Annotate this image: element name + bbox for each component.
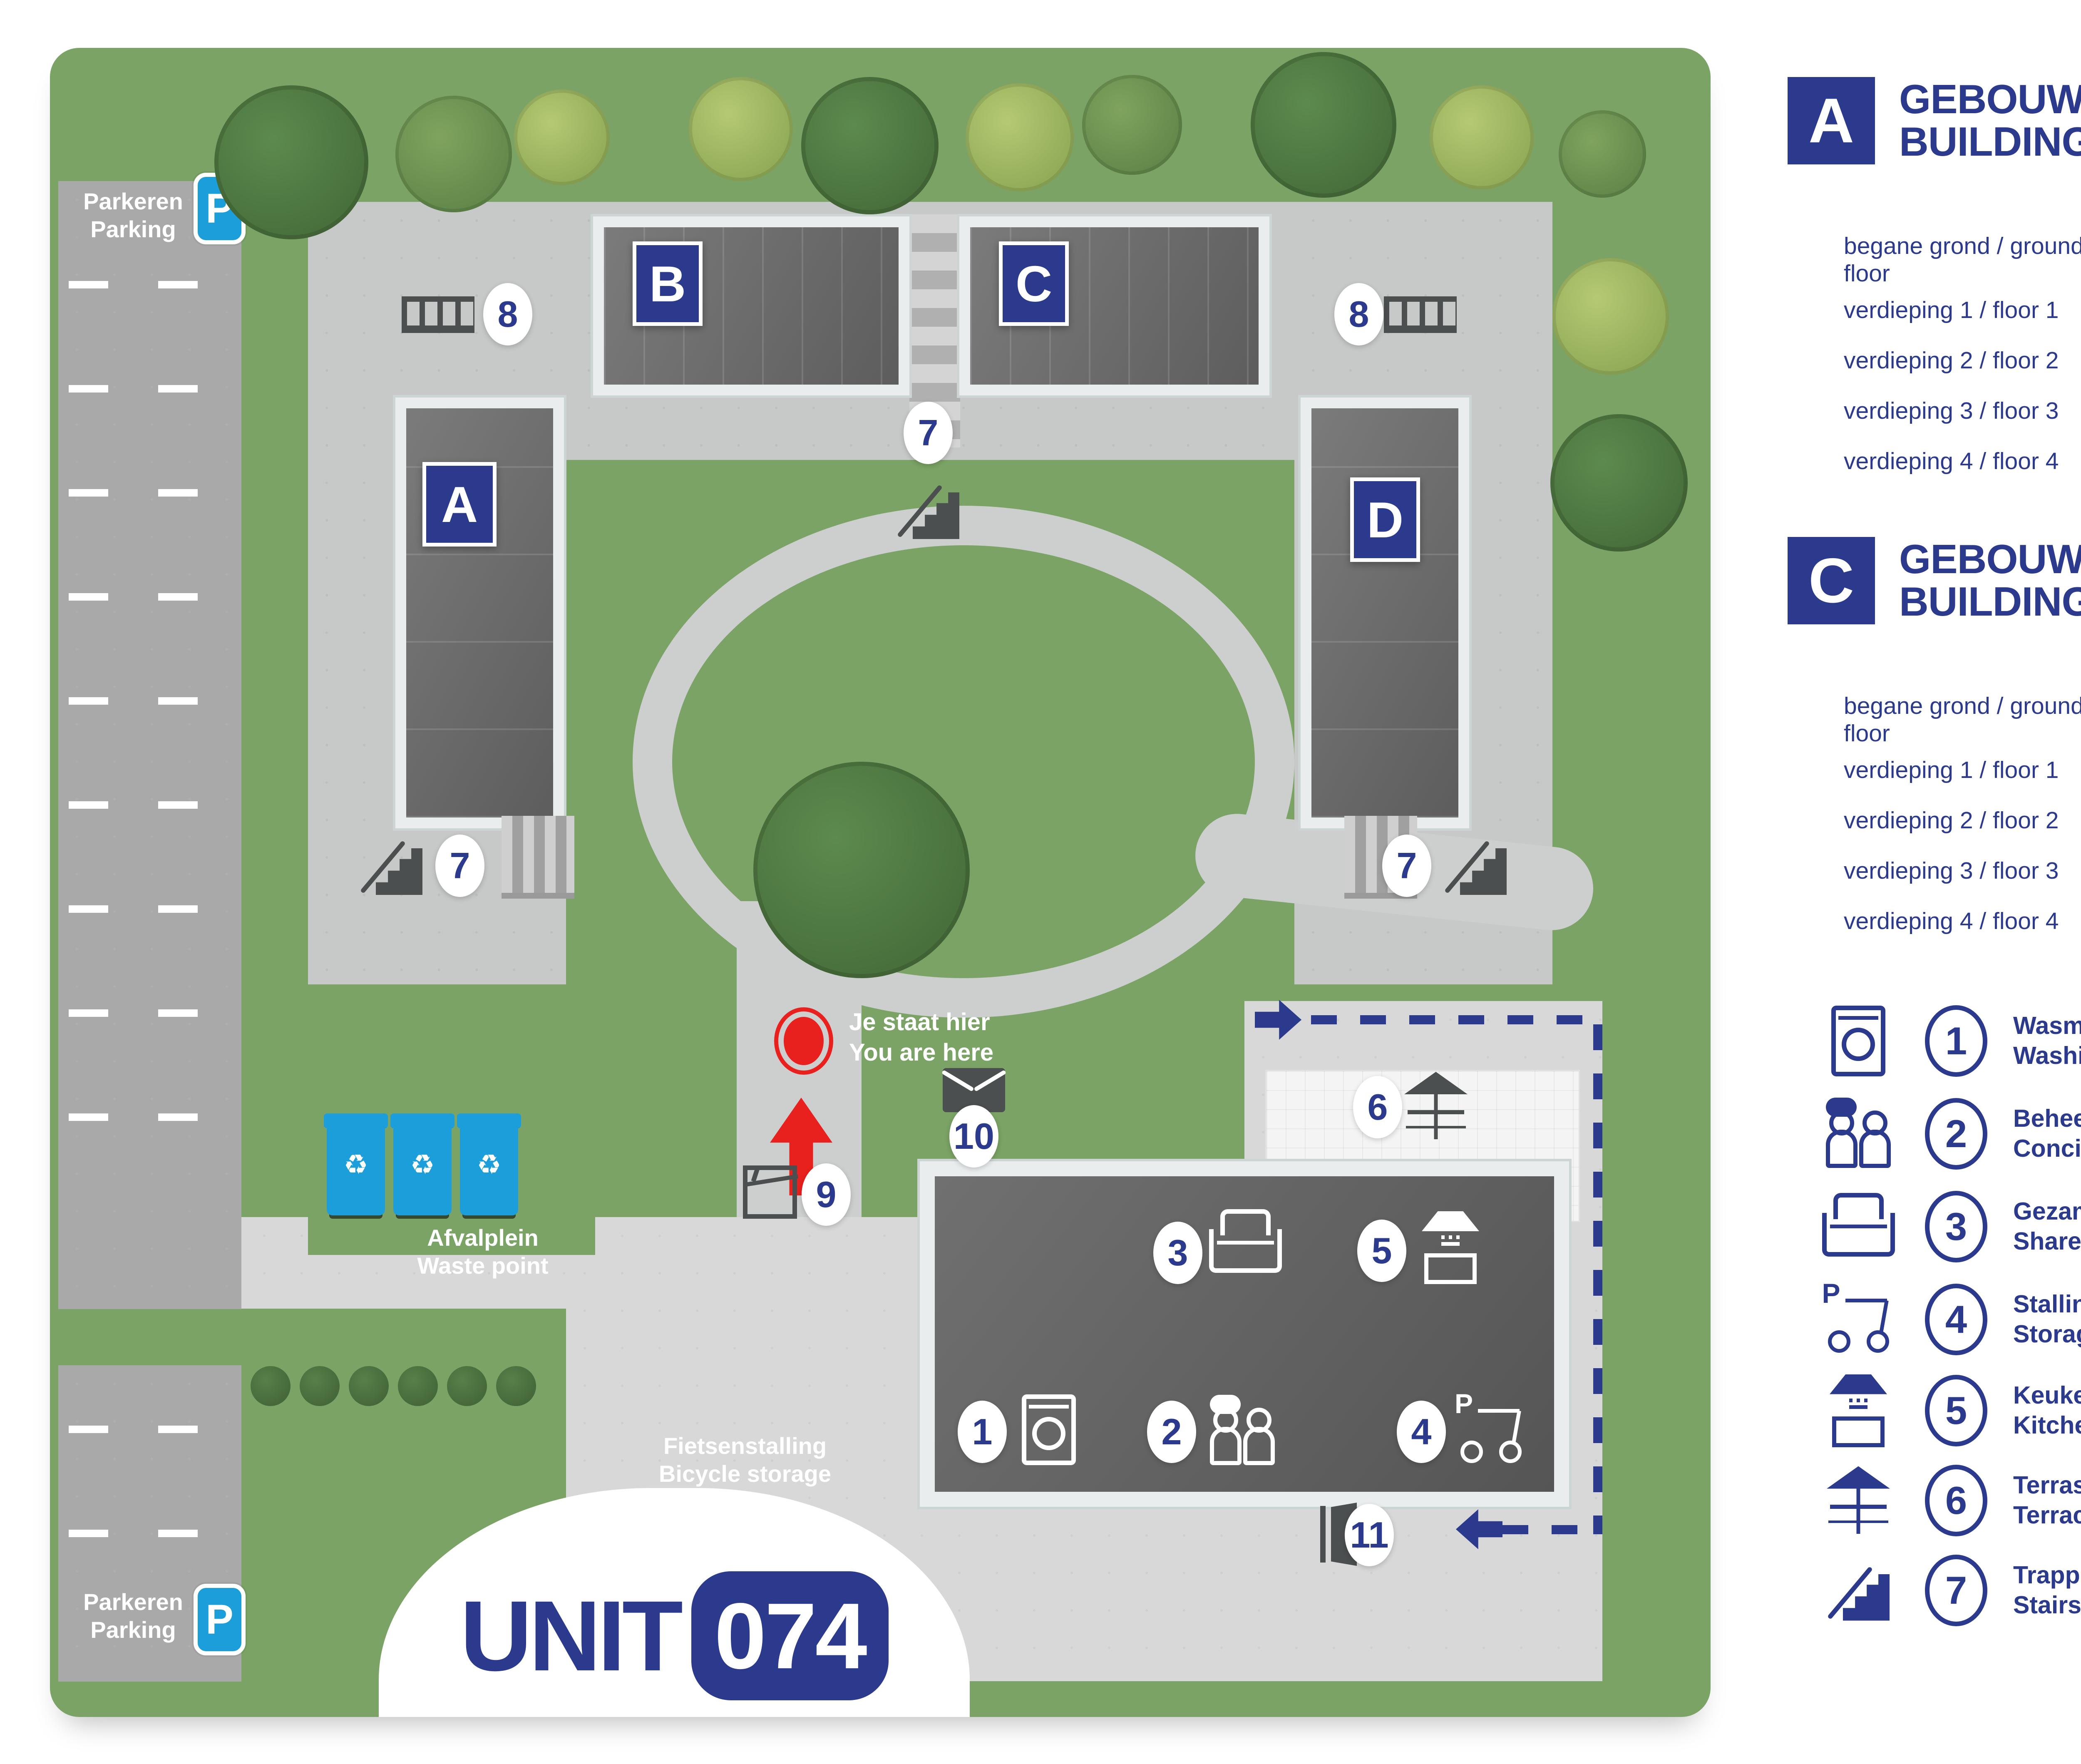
legend-text-en: Kitchen [2013,1411,2081,1441]
floor-row: verdieping 4 / floor 4174 - 196 [1788,436,2081,486]
waste-point-label: Afvalplein Waste point [408,1224,558,1280]
recycle-glyph: ♻ [477,1148,501,1180]
floor-row: verdieping 2 / floor 2286 - 300 [1788,795,2081,845]
site-map: Parkeren Parking P Parkeren Parking P A … [50,48,1711,1717]
title-nl: GEBOUW [1899,78,2081,121]
sofa-icon [1209,1229,1282,1273]
tree-icon [1251,52,1396,198]
map-badge-8: 8 [483,283,532,345]
parking-line [69,489,231,497]
concierge-icon [1825,1099,1892,1168]
floor-label: begane grond / ground floor [1788,232,2081,287]
recycle-bin-icon: ♻ [460,1113,518,1215]
tree-icon [1559,110,1646,198]
parking-label-north: Parkeren Parking [75,187,191,243]
building-B-label: B [633,241,703,326]
building-title: GEBOUW BUILDING [1899,538,2081,623]
bicycle-storage-line2: Bicycle storage [653,1460,837,1488]
washing-machine-icon [1831,1006,1885,1076]
map-badge-2: 2 [1147,1401,1196,1463]
you-are-here-line1: Je staat hier [849,1007,1065,1038]
legend-text-nl: Keuken [2013,1381,2081,1411]
parking-line [69,905,231,913]
legend-column-1: 1 Wasmachines en wasdrogersWashing machi… [1815,994,2081,1635]
floor-row: begane grond / ground floor198 - 220 [1788,234,2081,285]
tree-icon [514,89,610,185]
parking-line [69,593,231,601]
floor-label: verdieping 3 / floor 3 [1788,397,2081,425]
bush-icon [447,1366,487,1406]
stairs-icon [1827,1560,1890,1621]
stairs-icon [1444,835,1507,895]
tree-icon [1552,258,1669,375]
tree-icon [395,96,512,212]
legend-item-6: 6 TerrasTerrace [1815,1456,2081,1545]
map-badge-9: 9 [802,1163,851,1226]
floor-label: begane grond / ground floor [1788,692,2081,747]
legend-text-nl: Gezamenlijke woonkamer [2013,1197,2081,1227]
parking-label-line1: Parkeren [75,187,191,215]
floor-label: verdieping 1 / floor 1 [1788,756,2081,784]
tree-icon [1430,85,1534,189]
tree-icon [214,85,368,239]
legend-number-badge: 4 [1925,1284,1987,1355]
legend-number-badge: 2 [1925,1098,1987,1170]
building-D [1301,398,1469,828]
parking-sign-letter: P [206,1596,233,1644]
floor-row: verdieping 4 / floor 4350 - 364 [1788,896,2081,946]
map-badge-6: 6 [1353,1076,1402,1138]
parking-label-south: Parkeren Parking [75,1588,191,1644]
legend-number-badge: 7 [1925,1555,1987,1626]
bush-icon [349,1366,389,1406]
parking-line [69,801,231,809]
legend-item-4: 4 Stalling elektrische voertuigenStorage… [1815,1273,2081,1366]
map-badge-7: 7 [1382,835,1431,897]
map-badge-7: 7 [904,402,953,464]
floor-table: begane grond / ground floor198 - 220 ver… [1788,234,2081,486]
route-dashed-line [1502,1525,1598,1534]
floor-row: verdieping 2 / floor 2126 - 148 [1788,335,2081,385]
ebike-parking-icon [1455,1396,1527,1463]
legend-text-en: Storage electric vehicles [2013,1319,2081,1349]
building-info-C: C GEBOUW BUILDING begane grond / ground … [1788,537,2081,946]
legend-text-nl: Wasmachines en wasdrogers [2013,1011,2081,1041]
waste-point-line2: Waste point [408,1252,558,1280]
aerial-walkway-icon [1384,296,1457,333]
floor-row: verdieping 3 / floor 3150 - 172 [1788,385,2081,436]
map-badge-11: 11 [1345,1504,1394,1566]
route-dashed-line [1311,1015,1602,1024]
map-badge-4: 4 [1397,1401,1446,1463]
you-are-here-line2: You are here [849,1038,1065,1068]
tree-icon [1550,414,1688,552]
title-nl: GEBOUW [1899,538,2081,581]
washing-machine-icon [1022,1394,1076,1465]
legend-item-5: 5 KeukenKitchen [1815,1366,2081,1456]
stairs-icon [360,835,422,895]
floor-row: verdieping 1 / floor 1254 - 268 [1788,745,2081,795]
floor-label: verdieping 2 / floor 2 [1788,807,2081,834]
unit-logo-text: UNIT [460,1578,680,1693]
parking-label-line1: Parkeren [75,1588,191,1616]
parking-label-line2: Parking [75,1616,191,1644]
floor-row: verdieping 1 / floor 1102 - 124 [1788,285,2081,335]
parking-strip-north [58,181,241,1309]
map-badge-5: 5 [1357,1220,1406,1282]
terrace-icon [1825,1466,1892,1535]
map-badge-10: 10 [949,1105,998,1168]
legend-item-3: 3 Gezamenlijke woonkamerShared living ro… [1815,1180,2081,1273]
tree-icon [801,77,939,214]
legend-text-en: Terrace [2013,1501,2081,1530]
site-map-poster: Parkeren Parking P Parkeren Parking P A … [0,0,2081,1764]
bicycle-storage-label: Fietsenstalling Bicycle storage [653,1432,837,1488]
parking-line [69,1009,231,1017]
building-info-A: A GEBOUW BUILDING begane grond / ground … [1788,77,2081,486]
building-D-label: D [1350,477,1420,562]
parking-line [69,1426,231,1433]
legend-item-1: 1 Wasmachines en wasdrogersWashing machi… [1815,994,2081,1087]
legend-text-nl: Stalling elektrische voertuigen [2013,1289,2081,1319]
bush-icon [398,1366,438,1406]
sofa-icon [1822,1213,1895,1257]
stairs-icon [897,479,959,539]
building-A-label: A [422,462,497,547]
legend-text-en: Shared living room [2013,1227,2081,1257]
building-C-label: C [999,241,1069,326]
tree-icon [1082,75,1182,175]
floor-label: verdieping 4 / floor 4 [1788,907,2081,935]
kitchen-icon [1419,1211,1482,1284]
floor-row: verdieping 3 / floor 3318 - 332 [1788,845,2081,896]
terrace-icon [1403,1072,1469,1140]
concierge-icon [1209,1396,1276,1465]
ebike-parking-icon [1822,1286,1895,1353]
staircase-ribs [502,816,574,899]
courtyard-loop-path [633,506,1294,1018]
legend-text-nl: Trappen [2013,1560,2081,1590]
floor-row: begane grond / ground floor366 - 380 [1788,694,2081,745]
tree-icon [753,762,970,978]
legend-number-badge: 6 [1925,1465,1987,1536]
legend-number-badge: 1 [1925,1005,1987,1077]
legend-number-badge: 3 [1925,1191,1987,1262]
parking-label-line2: Parking [75,215,191,243]
route-dashed-line [1593,1024,1602,1534]
building-title: GEBOUW BUILDING [1899,78,2081,163]
tree-icon [689,77,793,181]
parking-line [69,385,231,393]
recycle-glyph: ♻ [343,1148,368,1180]
title-en: BUILDING [1899,121,2081,163]
building-info-header: C GEBOUW BUILDING [1788,537,2081,624]
building-letter-tile: C [1788,537,1875,624]
legend-item-7: 7 TrappenStairs [1815,1545,2081,1635]
floor-label: verdieping 4 / floor 4 [1788,447,2081,475]
title-en: BUILDING [1899,581,2081,623]
floor-label: verdieping 3 / floor 3 [1788,857,2081,884]
floor-table: begane grond / ground floor366 - 380 ver… [1788,694,2081,946]
legend-text-nl: Beheerder [2013,1104,2081,1134]
recycle-glyph: ♻ [410,1148,435,1180]
bicycle-storage-line1: Fietsenstalling [653,1432,837,1460]
building-letter-tile: A [1788,77,1875,164]
legend-number-badge: 5 [1925,1375,1987,1446]
recycle-bin-icon: ♻ [327,1113,385,1215]
parking-line [69,697,231,705]
parking-line [69,1113,231,1121]
parcel-point-icon [743,1165,797,1219]
legend-text-en: Washing machines and dryers [2013,1041,2081,1071]
you-are-here-marker [774,1007,833,1075]
parking-line [69,281,231,288]
legend-text-nl: Terras [2013,1471,2081,1501]
map-badge-3: 3 [1153,1222,1202,1284]
bush-icon [496,1366,536,1406]
bush-icon [300,1366,340,1406]
parking-line [69,1530,231,1537]
legend-text-en: Stairs [2013,1590,2081,1620]
waste-point-line1: Afvalplein [408,1224,558,1252]
unit-logo-number: 074 [691,1571,888,1700]
map-badge-8: 8 [1334,283,1383,345]
aerial-walkway-icon [402,296,474,333]
floor-label: verdieping 1 / floor 1 [1788,296,2081,324]
recycle-bin-icon: ♻ [393,1113,452,1215]
legend-item-2: 2 BeheerderConcierge [1815,1087,2081,1180]
tree-icon [966,83,1074,191]
map-badge-7: 7 [435,835,484,897]
floor-label: verdieping 2 / floor 2 [1788,347,2081,374]
building-info-header: A GEBOUW BUILDING [1788,77,2081,164]
legend-text-en: Concierge [2013,1134,2081,1164]
parking-sign-icon: P [194,1584,246,1655]
you-are-here-label: Je staat hier You are here [849,1007,1065,1068]
bush-icon [251,1366,291,1406]
kitchen-icon [1827,1374,1890,1447]
map-badge-1: 1 [958,1401,1007,1463]
